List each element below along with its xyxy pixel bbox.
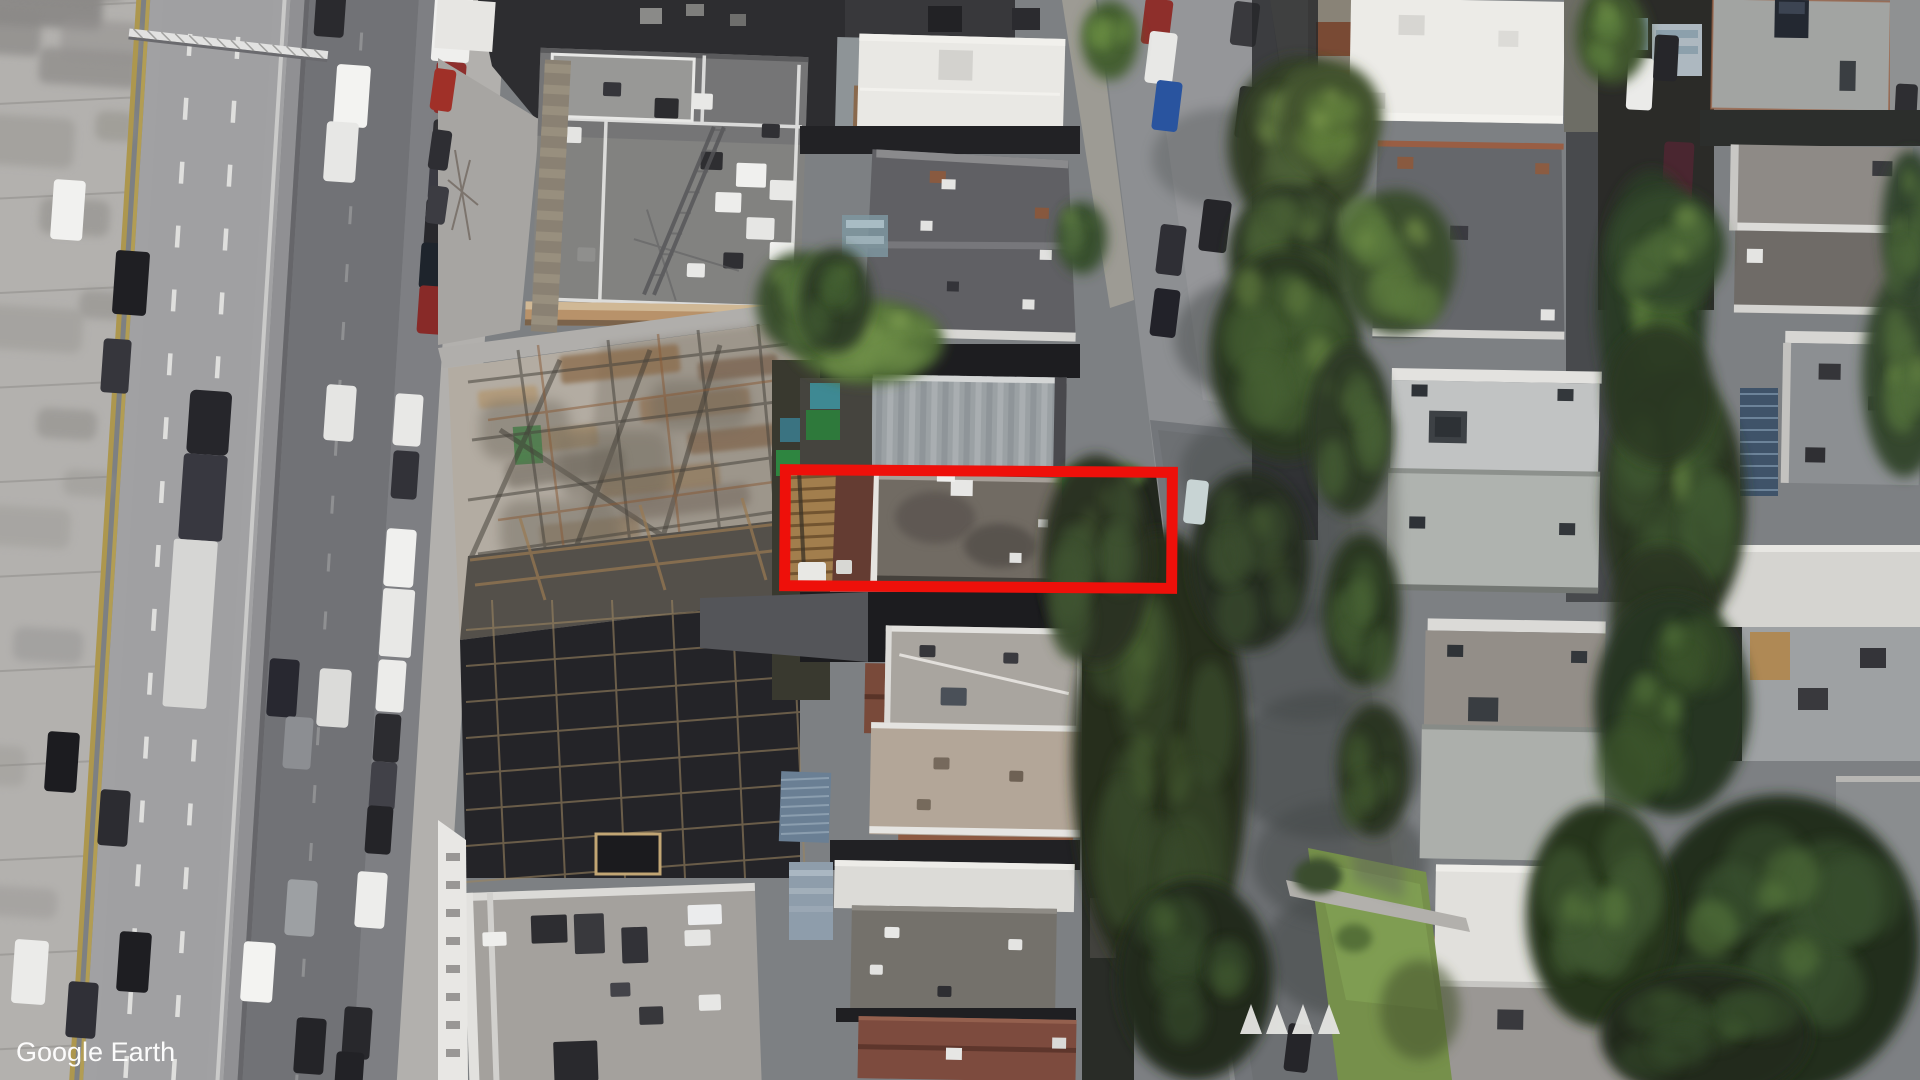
svg-text:Google Earth: Google Earth — [16, 1037, 175, 1067]
